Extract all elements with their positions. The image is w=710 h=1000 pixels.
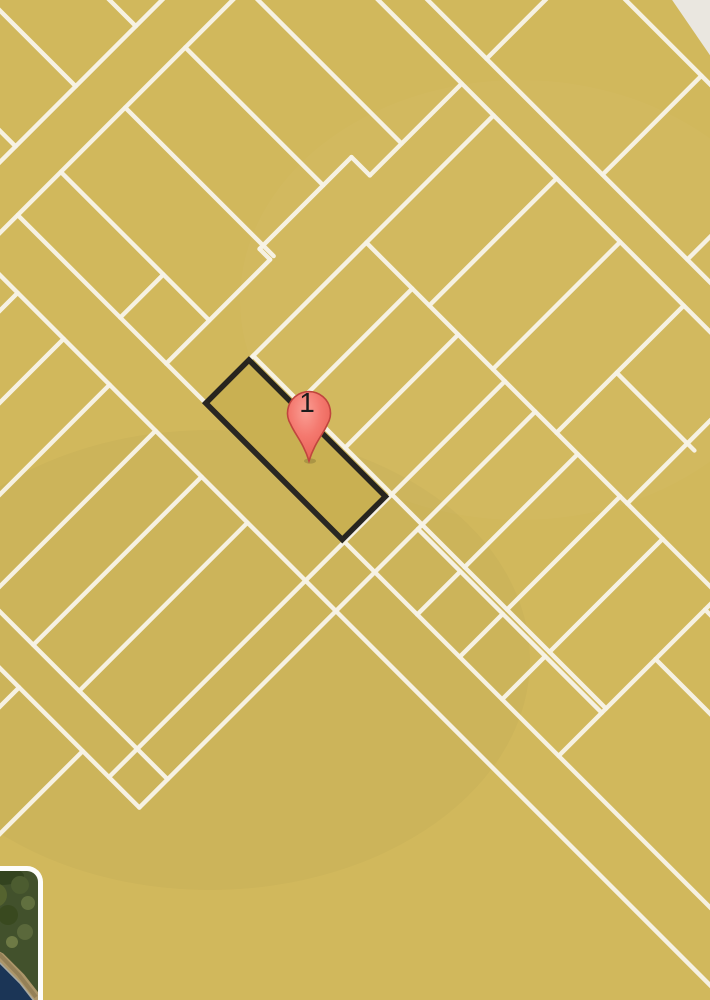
minimap-satellite-image — [0, 867, 38, 1000]
map-canvas[interactable]: 1 — [0, 0, 710, 1000]
minimap-toggle[interactable] — [0, 866, 43, 1000]
pin-label: 1 — [299, 387, 315, 418]
